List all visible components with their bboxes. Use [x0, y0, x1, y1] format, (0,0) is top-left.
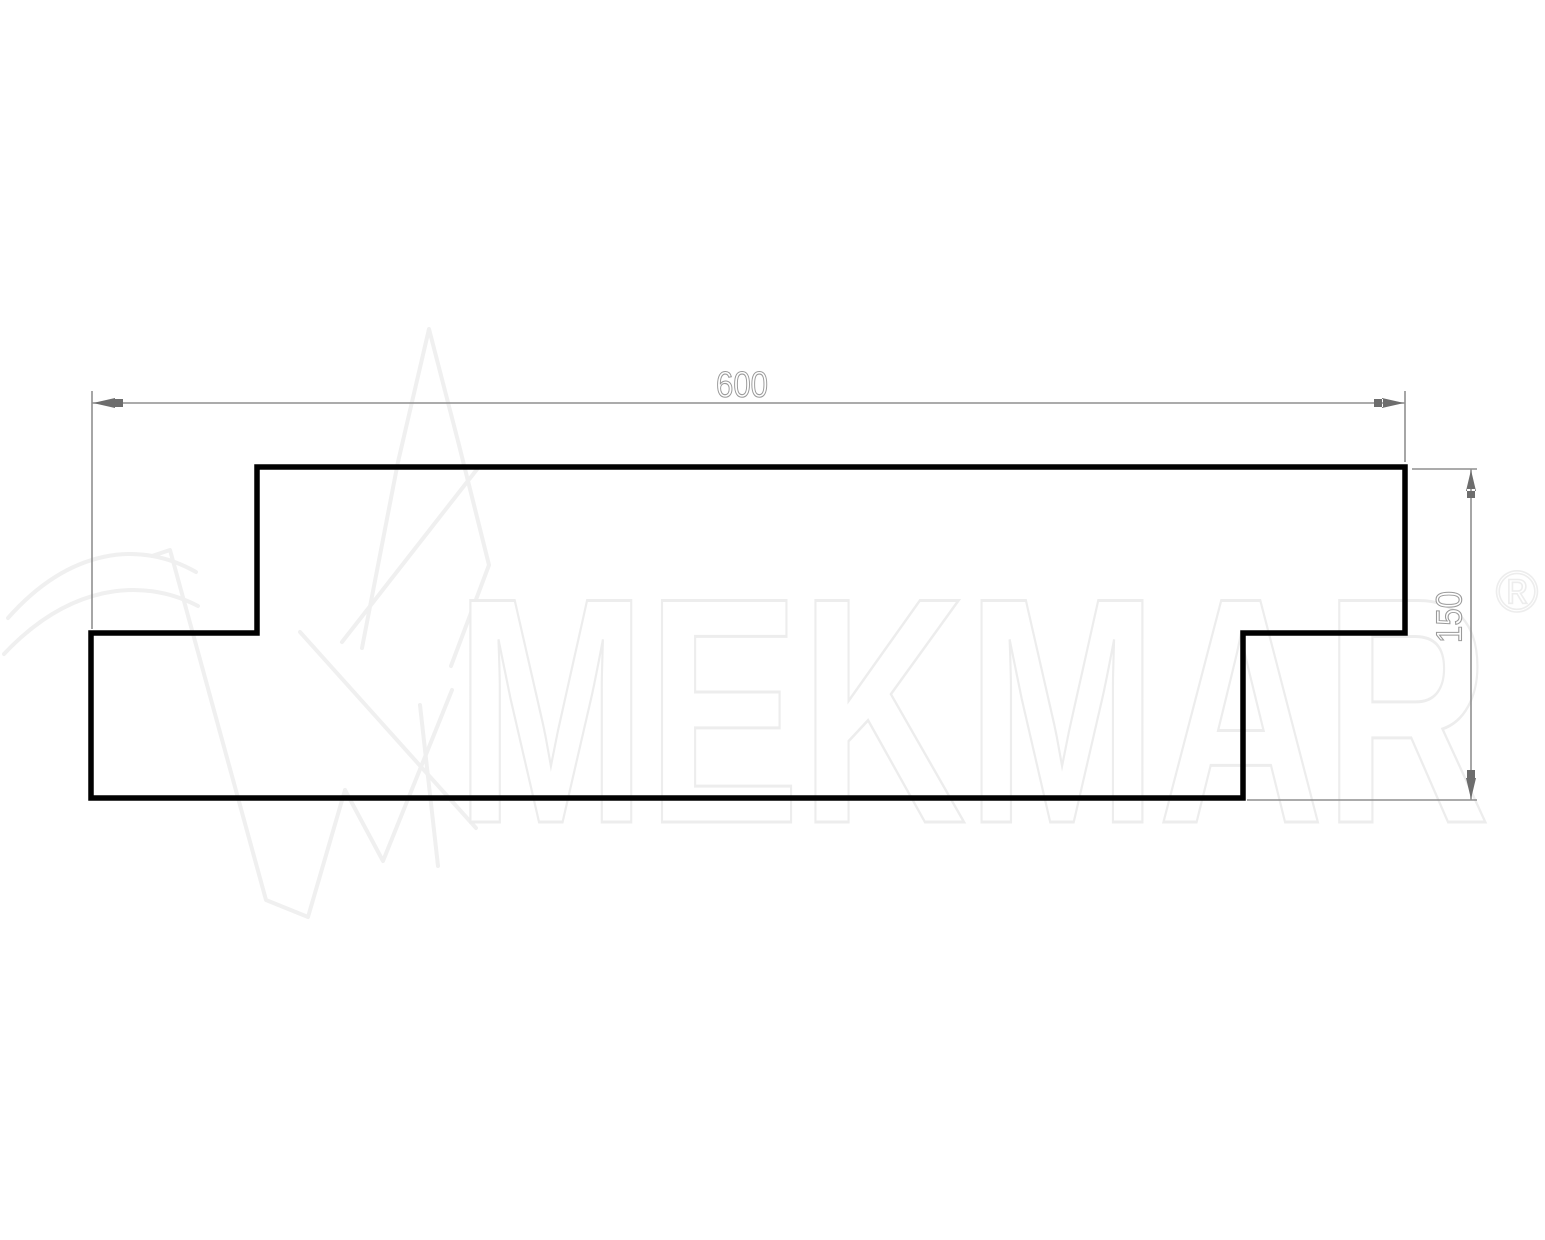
- logo-swoosh-upper: [8, 554, 196, 618]
- height-dimension-value: 150: [1429, 591, 1470, 643]
- watermark-brand-text: MEKMAR: [455, 532, 1490, 891]
- drawing-page: MEKMAR ® 600 150: [0, 0, 1545, 1240]
- arrow-left-icon: [93, 398, 123, 408]
- technical-drawing-canvas: MEKMAR ® 600 150: [0, 0, 1545, 1240]
- logo-swoosh-lower: [4, 590, 198, 654]
- watermark: MEKMAR ®: [4, 329, 1538, 917]
- logo-vee-left: [152, 550, 345, 917]
- arrow-up-icon: [1466, 470, 1476, 498]
- width-dimension-value: 600: [716, 364, 768, 405]
- registered-trademark-icon: ®: [1496, 560, 1539, 625]
- arrow-right-icon: [1374, 398, 1404, 408]
- watermark-logo-icon: [4, 329, 489, 917]
